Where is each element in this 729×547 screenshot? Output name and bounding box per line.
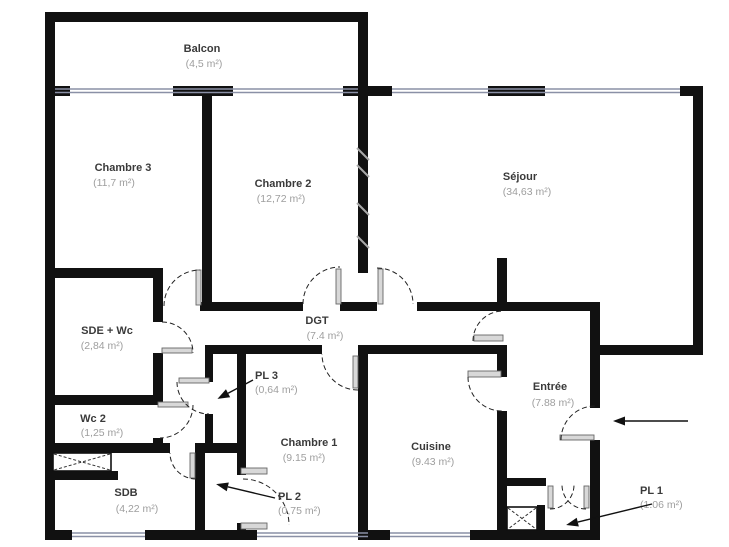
room-label-pl-3: PL 3: [255, 370, 278, 382]
pl3-door-arc: [177, 382, 209, 414]
room-area-pl-3: (0,64 m²): [255, 384, 298, 396]
cuisine-door-leaf: [468, 371, 501, 377]
room-area-cuisine: (9.43 m²): [412, 456, 455, 468]
pl2-door-jamb-top: [241, 468, 267, 474]
room-label-dgt: DGT: [305, 315, 329, 327]
floor-plan: Balcon(4,5 m²)Chambre 3(11,7 m²)Chambre …: [0, 0, 729, 547]
chambre3-door-leaf: [196, 270, 201, 305]
pl1-arrow: [566, 504, 652, 526]
room-area-balcon: (4,5 m²): [186, 58, 223, 70]
room-area-pl-2: (0,75 m²): [278, 505, 321, 517]
duct-box-1: [53, 453, 111, 471]
room-label-chambre-1: Chambre 1: [281, 437, 338, 449]
room-label-s-jour: Séjour: [503, 171, 538, 183]
chambre2-door-leaf: [336, 269, 341, 304]
room-area-sde-wc: (2,84 m²): [81, 340, 124, 352]
wc2-door-leaf: [158, 402, 188, 407]
pl1-door-leaf-right: [584, 486, 589, 508]
room-area-sdb: (4,22 m²): [116, 503, 159, 515]
pl3-door-leaf: [179, 378, 209, 383]
wc2-door-arc: [160, 405, 193, 438]
room-label-chambre-2: Chambre 2: [255, 178, 312, 190]
room-label-cuisine: Cuisine: [411, 441, 451, 453]
room-area-wc-2: (1,25 m²): [81, 427, 124, 439]
room-label-sde-wc: SDE + Wc: [81, 325, 133, 337]
room-label-pl-2: PL 2: [278, 491, 301, 503]
room-label-chambre-3: Chambre 3: [95, 162, 152, 174]
room-area-chambre-2: (12,72 m²): [257, 193, 305, 205]
walls-layer: [45, 12, 703, 540]
room-label-entr-e: Entrée: [533, 381, 567, 393]
chambre1-door-leaf: [353, 356, 358, 388]
room-label-pl-1: PL 1: [640, 485, 663, 497]
duct-box-2: [507, 507, 537, 530]
room-area-chambre-1: (9.15 m²): [283, 452, 326, 464]
room-area-dgt: (7.4 m²): [307, 330, 344, 342]
pl2-door-jamb-bottom: [241, 523, 267, 529]
room-label-balcon: Balcon: [184, 43, 221, 55]
floor-plan-canvas: Balcon(4,5 m²)Chambre 3(11,7 m²)Chambre …: [0, 0, 729, 547]
entry-arrow: [613, 417, 688, 426]
chambre2-door-arc: [303, 267, 340, 304]
room-area-entr-e: (7.88 m²): [532, 397, 575, 409]
chambre3-door-arc: [164, 270, 200, 306]
room-area-s-jour: (34,63 m²): [503, 186, 551, 198]
dgt-entree-door-leaf: [474, 335, 503, 341]
cuisine-door-arc: [468, 377, 502, 411]
sde-wc-door-leaf: [162, 348, 192, 353]
sdb-door-leaf: [190, 453, 195, 478]
entry-door-leaf: [560, 435, 594, 440]
sejour-door-leaf: [378, 269, 383, 304]
room-label-wc-2: Wc 2: [80, 413, 106, 425]
room-label-sdb: SDB: [114, 487, 137, 499]
room-area-chambre-3: (11,7 m²): [93, 177, 135, 189]
pl1-door-leaf-left: [548, 486, 553, 508]
pl3-arrow: [217, 380, 253, 399]
